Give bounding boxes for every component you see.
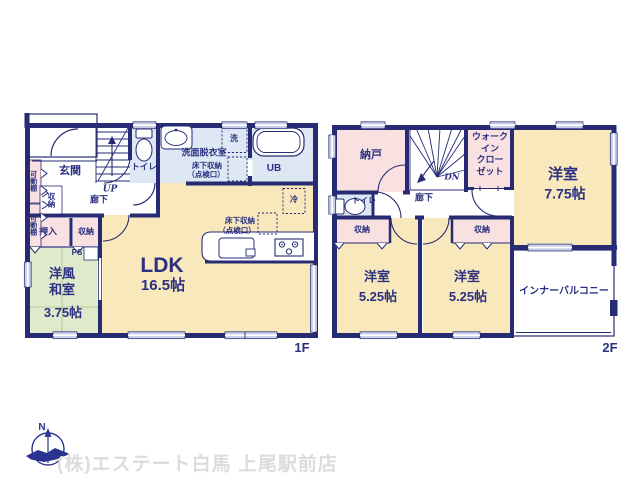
label-floor1: 1F [294, 341, 309, 355]
label-wic-3: クロー [476, 155, 503, 164]
label-underfloor-washroom-1: 床下収納 [192, 162, 222, 170]
kitchen-tap [246, 249, 255, 256]
label-unit-bath: UB [267, 164, 281, 175]
toilet-door-arc-1f [104, 157, 130, 183]
label-washitsu-2: 和室 [49, 283, 75, 297]
bedroom775-door-arc [472, 190, 498, 216]
label-wic-2: イン [481, 144, 499, 153]
label-corridor-1f: 廊下 [90, 195, 108, 204]
label-oshiire: 押入 [39, 227, 57, 236]
company-name: (株)エステート白馬 上尾駅前店 [57, 449, 338, 476]
label-bedroom775-size: 7.75帖 [544, 187, 585, 202]
floor1-stairs [96, 125, 130, 183]
ps-shaft [84, 247, 98, 260]
label-washer: 洗 [230, 135, 238, 143]
label-closet-2f-left: 収納 [354, 226, 370, 234]
bath-door [248, 160, 253, 176]
label-bedroom525-left: 洋室 [364, 270, 390, 284]
label-washitsu-size: 3.75帖 [44, 306, 82, 320]
label-hall-closet: 収納 [47, 193, 55, 208]
label-washroom: 洗面脱衣室 [181, 148, 226, 157]
toilet-door-arc-2f [375, 192, 401, 218]
label-wic-1: ウォーク [472, 132, 508, 141]
washroom-door-arc [133, 183, 155, 205]
label-bedroom775: 洋室 [548, 167, 578, 183]
label-genkan: 玄関 [59, 166, 81, 178]
label-fridge: 冷 [290, 196, 298, 204]
label-inner-balcony: インナーバルコニー [519, 287, 609, 298]
up-arrow-icon [108, 136, 116, 144]
shelf-marker [41, 169, 47, 178]
entry-porch [27, 114, 97, 157]
label-small-closet: 収納 [78, 228, 94, 236]
dn-arrow-icon [417, 173, 426, 183]
stove-icon [275, 239, 303, 256]
label-movable-shelf-1: 可動棚 [29, 171, 36, 192]
label-stairs-dn: DN [444, 174, 459, 183]
label-corridor-2f: 廊下 [415, 193, 433, 202]
label-north: N [38, 423, 45, 434]
label-bedroom525-left-size: 5.25帖 [359, 290, 397, 304]
label-nando: 納戸 [360, 150, 382, 162]
label-bedroom525-right: 洋室 [454, 270, 480, 284]
label-bedroom525-right-size: 5.25帖 [449, 290, 487, 304]
label-floor2: 2F [602, 341, 617, 355]
label-toilet-2f: トイレ [352, 197, 376, 205]
label-ldk-size: 16.5帖 [141, 278, 185, 294]
floor1-porch [27, 113, 97, 161]
bathtub-icon [253, 128, 304, 156]
label-washitsu-1: 洋風 [49, 267, 75, 281]
label-ps: PS [72, 249, 83, 257]
label-underfloor-washroom-2: （点検口） [187, 171, 225, 179]
label-toilet-1f: トイレ [131, 163, 157, 172]
label-closet-2f-right: 収納 [474, 226, 490, 234]
label-ldk: LDK [140, 255, 183, 277]
toilet-tank-icon-2f [335, 199, 344, 214]
label-stairs-up: UP [103, 185, 118, 194]
floorplan-page: 可動棚 可動棚 玄関 収納 廊下 UP トイレ 洗面脱衣室 床下収納 （点検口）… [0, 0, 640, 480]
toilet-tank-icon-1f [136, 129, 152, 138]
floor1-sliding-door [98, 258, 103, 300]
label-underfloor-kitchen-2: （点検口） [218, 227, 256, 235]
label-underfloor-kitchen-1: 床下収納 [225, 217, 255, 225]
floorplan-graphics [0, 0, 640, 480]
toilet-bowl-icon-1f [136, 139, 152, 161]
label-wic-4: ゼット [476, 167, 503, 176]
label-movable-shelf-2: 可動棚 [29, 215, 36, 236]
